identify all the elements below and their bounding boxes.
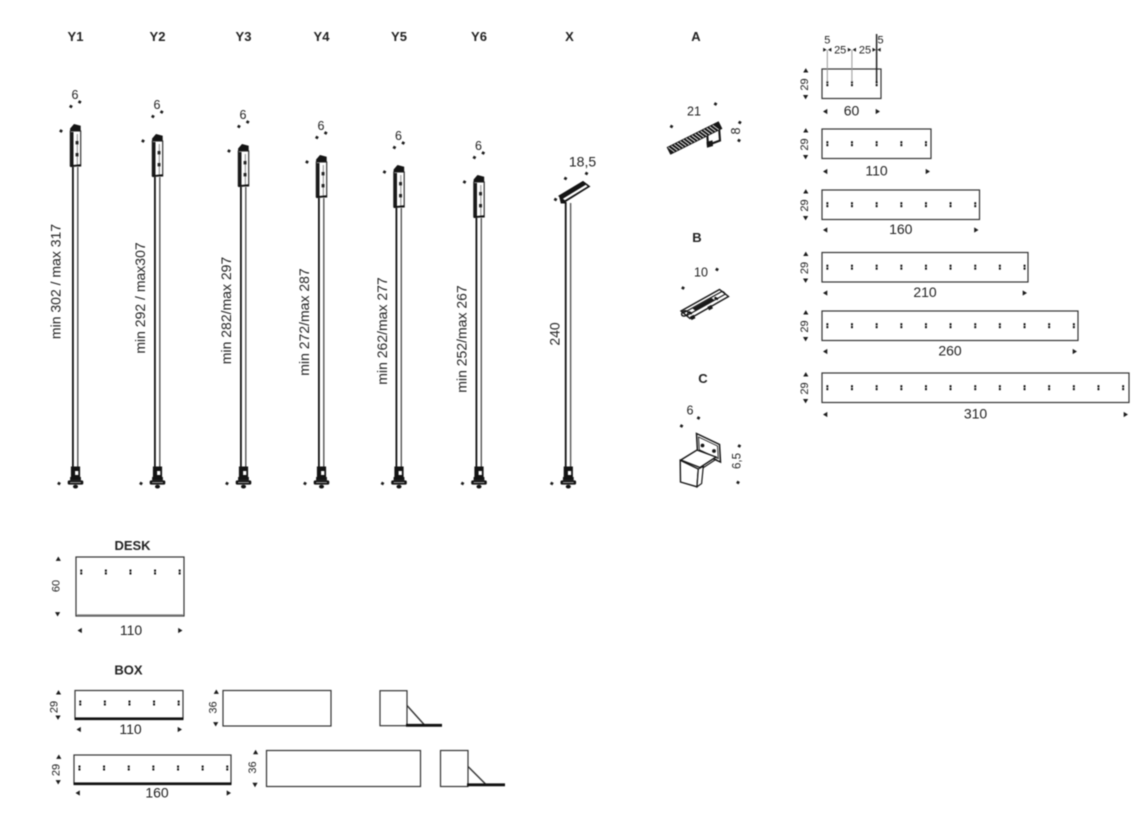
svg-text:110: 110: [120, 622, 143, 638]
svg-text:160: 160: [145, 784, 169, 800]
svg-text:210: 210: [913, 284, 937, 300]
svg-text:25: 25: [834, 45, 846, 57]
svg-text:6: 6: [687, 404, 694, 418]
svg-text:Y5: Y5: [391, 29, 407, 44]
svg-text:X: X: [565, 29, 574, 44]
svg-text:29: 29: [49, 701, 61, 713]
svg-text:min 252/max 267: min 252/max 267: [454, 285, 470, 393]
svg-text:260: 260: [938, 342, 962, 358]
svg-text:29: 29: [50, 764, 62, 776]
svg-text:min 292 / max307: min 292 / max307: [132, 242, 148, 353]
svg-text:6: 6: [395, 129, 402, 143]
svg-text:BOX: BOX: [114, 663, 143, 678]
svg-text:DESK: DESK: [114, 538, 151, 553]
svg-text:5: 5: [877, 35, 883, 47]
svg-text:310: 310: [964, 405, 988, 421]
svg-text:6: 6: [72, 88, 79, 102]
svg-text:29: 29: [799, 262, 811, 274]
svg-text:min 272/max 287: min 272/max 287: [296, 268, 312, 376]
svg-text:8: 8: [729, 127, 743, 134]
svg-text:240: 240: [546, 322, 562, 346]
svg-text:Y2: Y2: [150, 29, 166, 44]
svg-text:110: 110: [119, 721, 142, 737]
svg-text:6: 6: [475, 139, 482, 153]
svg-text:5: 5: [824, 35, 830, 47]
svg-text:10: 10: [694, 266, 708, 280]
svg-text:Y4: Y4: [314, 29, 331, 44]
svg-text:Y3: Y3: [236, 29, 252, 44]
svg-text:Y6: Y6: [471, 29, 487, 44]
svg-text:29: 29: [799, 382, 811, 394]
svg-text:18,5: 18,5: [569, 154, 596, 170]
svg-text:min 302 / max 317: min 302 / max 317: [48, 224, 64, 339]
svg-text:60: 60: [51, 580, 63, 592]
svg-text:B: B: [692, 230, 701, 245]
svg-text:36: 36: [247, 761, 259, 773]
svg-text:25: 25: [859, 45, 871, 57]
svg-text:6: 6: [154, 98, 161, 112]
svg-text:Y1: Y1: [68, 29, 84, 44]
svg-text:21: 21: [687, 105, 701, 119]
svg-text:6: 6: [240, 108, 247, 122]
svg-text:6,5: 6,5: [732, 453, 744, 469]
svg-text:6: 6: [318, 119, 325, 133]
svg-text:110: 110: [865, 162, 888, 178]
svg-text:29: 29: [799, 199, 811, 211]
svg-text:36: 36: [208, 701, 220, 713]
svg-text:29: 29: [799, 78, 811, 90]
svg-text:29: 29: [799, 320, 811, 332]
svg-text:min 282/max 297: min 282/max 297: [218, 257, 234, 365]
svg-text:60: 60: [844, 102, 860, 118]
svg-text:min 262/max 277: min 262/max 277: [374, 277, 390, 385]
svg-text:A: A: [691, 29, 701, 44]
svg-text:160: 160: [889, 221, 913, 237]
svg-text:C: C: [698, 371, 708, 386]
svg-text:29: 29: [799, 138, 811, 150]
